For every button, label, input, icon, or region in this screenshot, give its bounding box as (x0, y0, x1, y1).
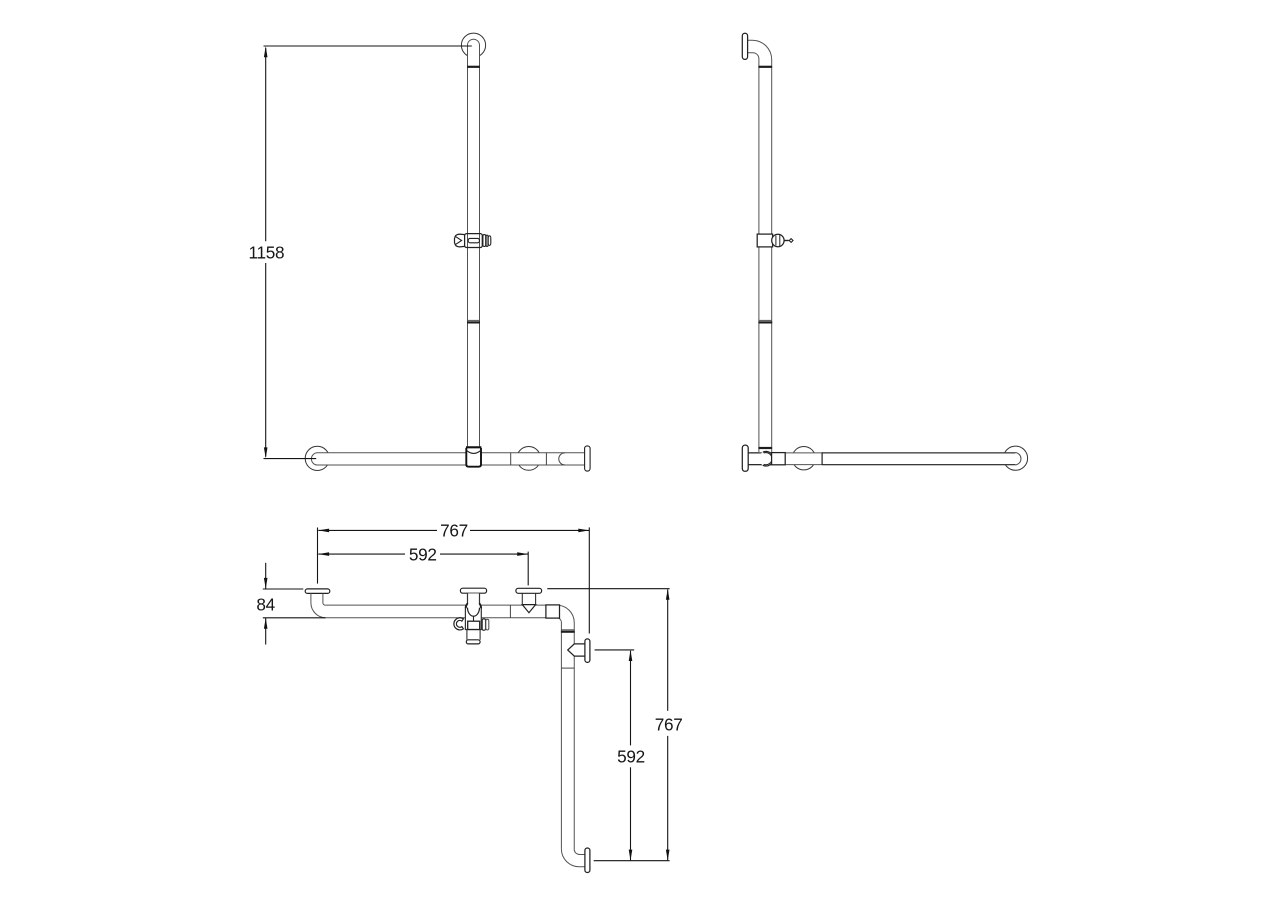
svg-text:767: 767 (440, 521, 468, 541)
svg-text:767: 767 (655, 715, 683, 735)
svg-text:592: 592 (409, 545, 437, 565)
svg-text:84: 84 (256, 594, 275, 614)
svg-text:592: 592 (617, 746, 645, 766)
svg-text:1158: 1158 (249, 243, 285, 263)
